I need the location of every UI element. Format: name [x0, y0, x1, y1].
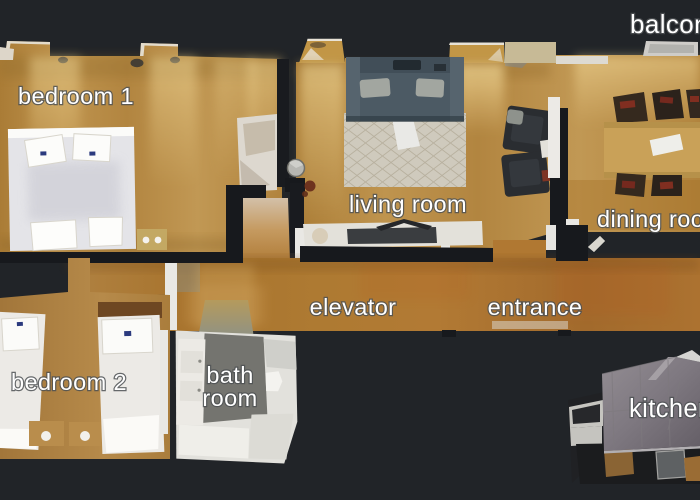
svg-text:entrance: entrance	[488, 294, 583, 320]
svg-text:bedroom 1: bedroom 1	[18, 83, 134, 109]
svg-text:room: room	[202, 385, 257, 411]
svg-text:elevator: elevator	[310, 294, 397, 320]
svg-text:living room: living room	[349, 191, 467, 217]
svg-text:dining room: dining room	[597, 206, 700, 232]
svg-text:kitchen: kitchen	[629, 395, 700, 423]
svg-text:bedroom 2: bedroom 2	[11, 369, 127, 395]
svg-text:balcony: balcony	[630, 9, 700, 39]
